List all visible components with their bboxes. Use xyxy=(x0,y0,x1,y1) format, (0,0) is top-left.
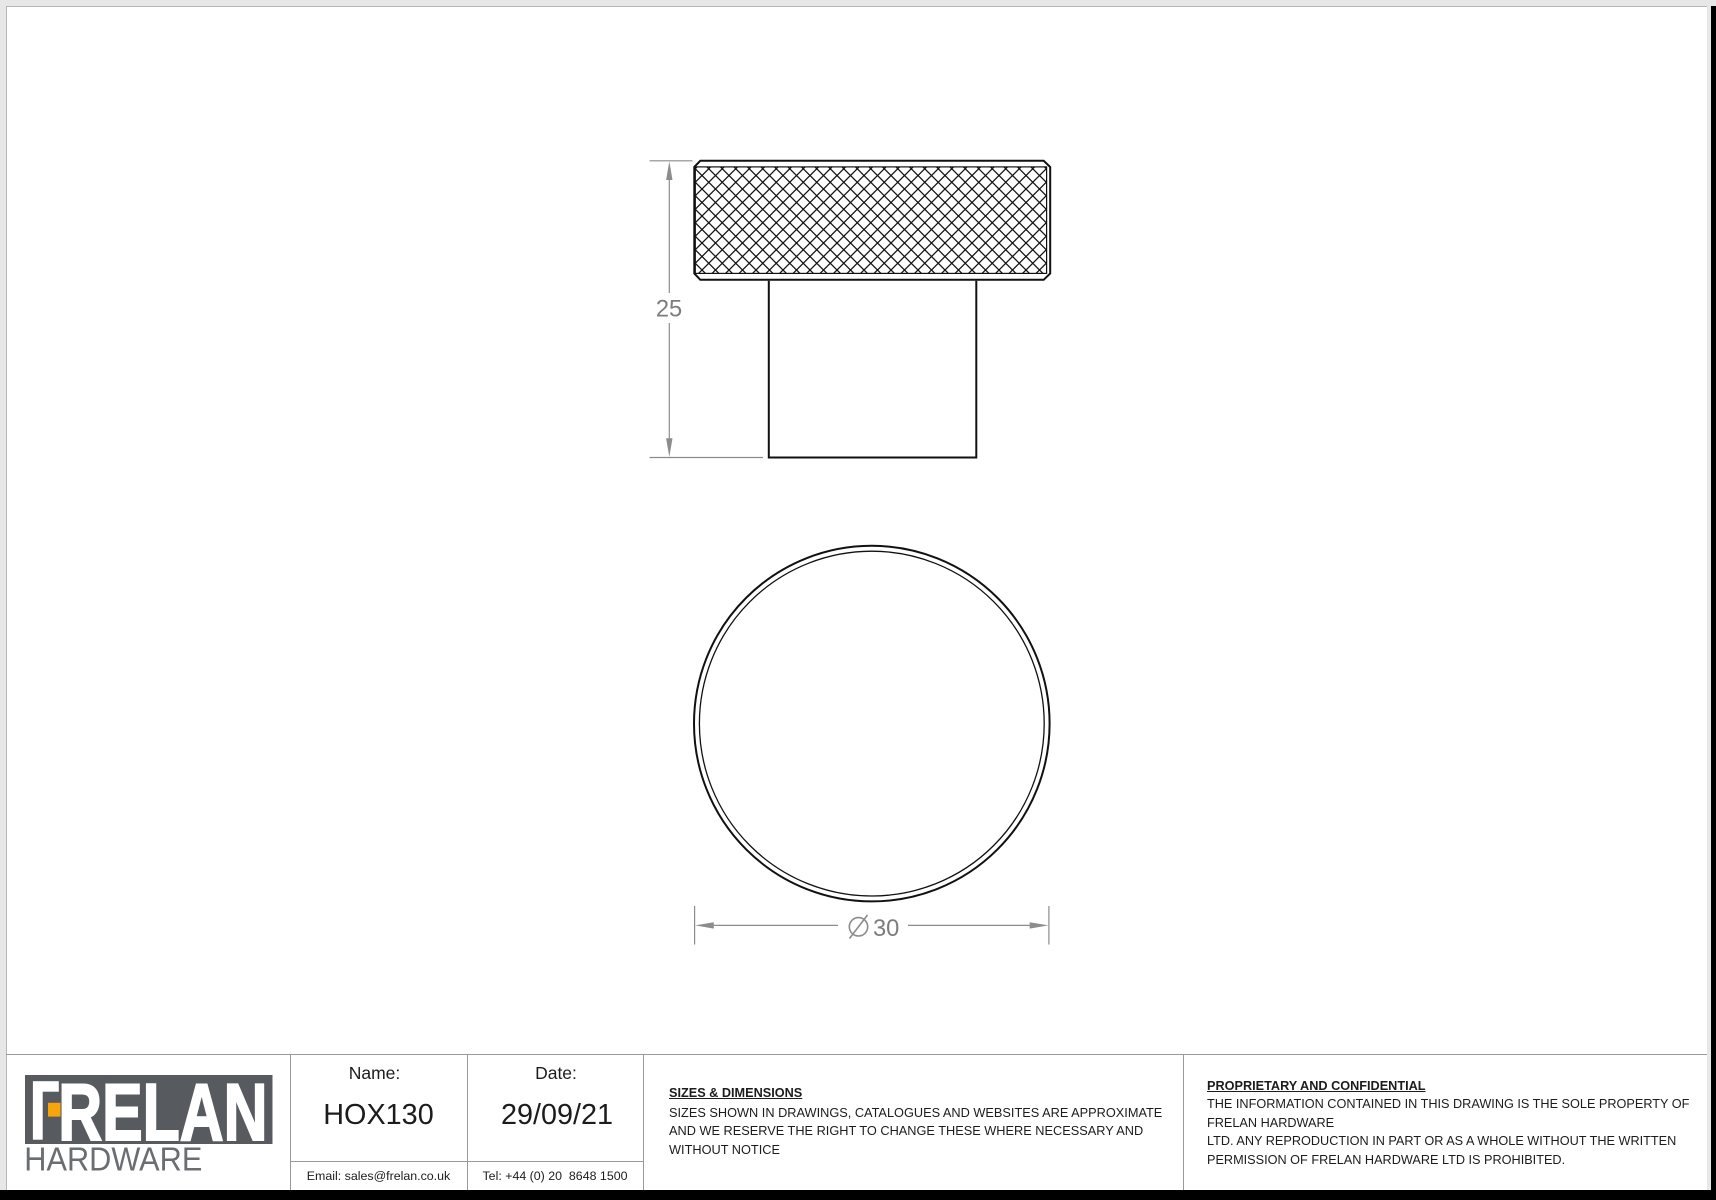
svg-text:HARDWARE: HARDWARE xyxy=(25,1140,202,1177)
svg-text:30: 30 xyxy=(873,916,899,942)
svg-text:25: 25 xyxy=(656,297,682,323)
